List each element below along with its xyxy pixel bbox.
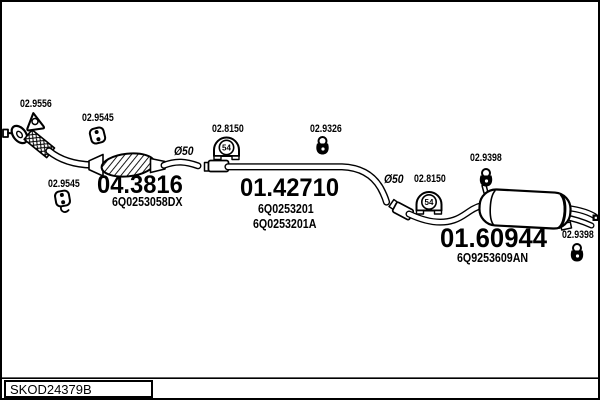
ref-front-gasket: 02.9556 [20,99,52,110]
oem-number-centre-pipe-a: 6Q0253201 [258,202,314,215]
oem-number-centre-pipe-b: 6Q0253201A [253,217,316,230]
oem-number-catalyst: 6Q0253058DX [112,195,183,208]
rubber-mount-icon-upper [89,127,106,145]
ref-mount-front-lower: 02.9545 [48,179,80,190]
ref-hanger-rear-front: 02.9398 [470,153,502,164]
drawing-code-box: SKOD24379B [4,380,153,398]
rubber-mount-icon-lower [54,190,71,213]
pipe-diameter-rear: Ø50 [384,175,404,187]
ref-clamp-front: 02.8150 [212,124,244,135]
hanger-icon-centre [316,137,328,155]
ref-clamp-rear: 02.8150 [414,174,446,185]
clamp-size-label: 54 [425,198,434,207]
article-number-rear-silencer: 01.60944 [440,225,547,252]
hanger-icon-rear-front [480,169,492,187]
ref-mount-front-upper: 02.9545 [82,113,114,124]
article-number-centre-pipe: 01.42710 [240,176,339,201]
pipe-diameter-front: Ø50 [174,147,194,159]
clamp-icon-front: 54 [214,138,239,160]
exhaust-system-diagram: 54 54 02.9556 02.9545 02.9545 [0,0,600,400]
ref-hanger-rear-end: 02.9398 [562,230,594,241]
ref-hanger-centre: 02.9326 [310,124,342,135]
drawing-code: SKOD24379B [10,382,92,397]
hanger-icon-rear-end [571,244,583,262]
clamp-icon-rear: 54 [417,192,442,214]
flange-gasket-icon [25,112,44,131]
oem-number-rear-silencer: 6Q9253609AN [457,251,528,264]
clamp-size-label: 54 [222,144,231,153]
